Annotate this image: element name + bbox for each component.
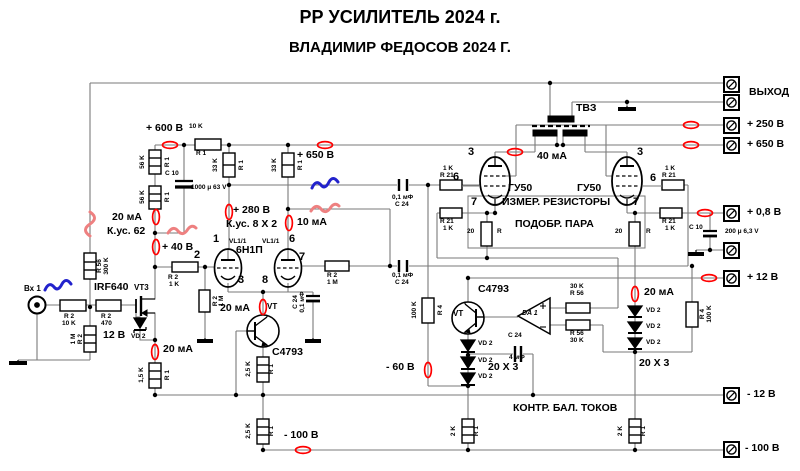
rot-25k-a: 2,5 K xyxy=(246,361,253,377)
red-squiggle-anode2 xyxy=(311,204,339,211)
rot-r1-c: R 1 xyxy=(239,160,246,170)
schematic-page: РР УСИЛИТЕЛЬ 2024 г. ВЛАДИМИР ФЕДОСОВ 20… xyxy=(0,0,800,471)
label-20r: 20 xyxy=(615,229,622,236)
terminal-minus12v-label: - 12 В xyxy=(747,389,776,400)
label-6n1p: 6Н1П xyxy=(236,245,263,256)
label-c10-right: C 10 xyxy=(689,225,703,232)
rot-300k: 300 K xyxy=(104,257,111,274)
rot-100k-r: 100 K xyxy=(707,305,714,322)
terminal-icon xyxy=(725,389,738,402)
terminal-plus650v-label: + 650 В xyxy=(747,139,784,150)
label-cap1-c24: C 24 xyxy=(395,202,409,209)
terminal-plus250v xyxy=(723,117,740,134)
rot-01uf-byp: 0,1 мФ xyxy=(300,291,307,312)
terminal-plus0v8-label: + 0,8 В xyxy=(747,207,781,218)
label-20l: 20 xyxy=(467,229,474,236)
terminal-icon xyxy=(725,443,738,456)
label-plus280v: + 280 В xyxy=(233,205,270,216)
label-20ma-left: 20 мА xyxy=(112,212,142,223)
rot-1m-g1: 1 M xyxy=(219,296,226,307)
cap-c10-200u xyxy=(703,231,717,236)
rot-15k: 1,5 K xyxy=(139,367,146,383)
rot-56k-1: 56 K xyxy=(140,155,147,169)
diode-chain-right xyxy=(628,306,642,349)
rot-25k-b: 2,5 K xyxy=(246,423,253,439)
label-minus60v: - 60 В xyxy=(386,362,415,373)
pin-7-gu50l: 7 xyxy=(471,197,477,208)
cap-c24-coupling-1 xyxy=(399,179,407,191)
label-c24s-1: C 24 xyxy=(508,333,522,340)
label-gu50-left: ГУ50 xyxy=(508,183,532,194)
label-r1-10k: R 1 xyxy=(196,151,206,158)
label-vd2-c1: VD 2 xyxy=(478,341,492,348)
rot-r1-i: R 1 xyxy=(641,426,648,436)
label-tvz: ТВЗ xyxy=(576,103,596,114)
label-podobr: ПОДОБР. ПАРА xyxy=(515,219,594,230)
rot-33k-1: 33 K xyxy=(213,158,220,172)
label-c4793-center: C4793 xyxy=(272,347,303,358)
label-40ma: 40 мА xyxy=(537,151,567,162)
label-vt-center: VT xyxy=(267,303,277,311)
label-vd2-r3: VD 2 xyxy=(646,340,660,347)
rot-2k-r: 2 K xyxy=(618,426,625,436)
label-vh1: Вх 1 xyxy=(24,285,41,293)
label-da1: DA 1 xyxy=(522,310,538,317)
label-plus600v: + 600 В xyxy=(146,123,183,134)
label-gu50-right: ГУ50 xyxy=(577,183,601,194)
label-vt-right: VT xyxy=(453,310,463,318)
label-c24s-2: 4 мФ xyxy=(509,355,525,362)
terminal-plus250v-label: + 250 В xyxy=(747,119,784,130)
rot-100k-l: 100 K xyxy=(412,301,419,318)
label-20ma-leftbottom: 20 мА xyxy=(163,344,193,355)
label-kontr: КОНТР. БАЛ. ТОКОВ xyxy=(513,403,617,414)
pin-1: 1 xyxy=(213,234,219,245)
label-vt3: VT3 xyxy=(134,284,149,292)
label-c4793-right: C4793 xyxy=(478,284,509,295)
label-plus40v: + 40 В xyxy=(162,242,193,253)
cap-c24-coupling-2 xyxy=(399,260,407,272)
terminal-icon xyxy=(725,139,738,152)
terminal-ground xyxy=(723,242,740,259)
rot-r1-h: R 1 xyxy=(474,426,481,436)
rot-r4-l: R 4 xyxy=(438,305,445,315)
pin-2: 2 xyxy=(194,250,200,261)
transistor-c4793-right xyxy=(452,302,484,334)
wires xyxy=(18,83,723,450)
label-r2-1k-2: 1 K xyxy=(169,282,179,289)
pin-3: 3 xyxy=(238,275,244,286)
rot-r1-g: R 1 xyxy=(269,426,276,436)
terminal-minus100v xyxy=(723,441,740,458)
label-r56t-2: R 56 xyxy=(570,291,584,298)
label-vl11-a: VL1/1 xyxy=(229,239,246,246)
label-12v: 12 В xyxy=(103,330,125,341)
label-minus100v-mid: - 100 В xyxy=(284,430,318,441)
label-200u: 200 μ 6,3 V xyxy=(725,229,759,236)
terminal-output-1 xyxy=(723,76,740,93)
terminal-minus12v xyxy=(723,387,740,404)
terminal-output-1-label: ВЫХОД xyxy=(749,87,789,98)
mosfet-irf640 xyxy=(136,296,155,316)
transistor-c4793-center xyxy=(247,315,279,347)
terminal-icon xyxy=(725,244,738,257)
label-10k-top: 10 K xyxy=(189,124,203,131)
rot-r1-a: R 1 xyxy=(165,157,172,167)
label-vl11-b: VL1/1 xyxy=(262,239,279,246)
label-c10-left: C 10 xyxy=(165,171,179,178)
pin-6-gu50r: 6 xyxy=(650,173,656,184)
label-kus8x2: К.ус. 8 X 2 xyxy=(226,219,277,230)
rot-2k-l: 2 K xyxy=(451,426,458,436)
label-r2-1m-g2-2: 1 M xyxy=(327,280,338,287)
label-kus62: К.ус. 62 xyxy=(107,226,145,237)
label-1000u: 1000 μ 63 V xyxy=(191,185,226,192)
terminal-plus650v xyxy=(723,137,740,154)
cap-c24-bypass xyxy=(306,296,320,301)
label-r21gl-2: R 21 xyxy=(440,173,454,180)
label-r21cr-2: 1 K xyxy=(665,226,675,233)
pin-8: 8 xyxy=(262,275,268,286)
label-rl: R xyxy=(497,229,502,236)
resistor-vertical-bodies xyxy=(84,150,698,444)
terminal-icon xyxy=(725,96,738,109)
terminal-icon xyxy=(725,119,738,132)
label-vd2-r2: VD 2 xyxy=(646,324,660,331)
terminal-plus12v xyxy=(723,270,740,287)
terminal-minus100v-label: - 100 В xyxy=(745,443,779,454)
pin-3-gu50r: 3 xyxy=(637,147,643,158)
label-cap2-c24: C 24 xyxy=(395,280,409,287)
label-r2in-2: 10 K xyxy=(62,321,76,328)
terminal-plus12v-label: + 12 В xyxy=(747,272,778,283)
input-jack xyxy=(29,297,46,314)
label-20ma-right: 20 мА xyxy=(644,287,674,298)
label-rr: R xyxy=(646,229,651,236)
label-20x3-right: 20 X 3 xyxy=(639,358,669,369)
rot-r2-in: R 2 xyxy=(78,334,85,344)
label-izmer: ИЗМЕР. РЕЗИСТОРЫ xyxy=(502,197,610,208)
label-plus650v-mid: + 650 В xyxy=(297,150,334,161)
terminal-icon xyxy=(725,272,738,285)
pin-7-gu50r: 7 xyxy=(633,197,639,208)
pin-6: 6 xyxy=(289,234,295,245)
pin-3-gu50l: 3 xyxy=(468,147,474,158)
blue-squiggle-driver xyxy=(312,179,338,189)
measurement-ovals xyxy=(152,122,717,454)
terminal-output-2 xyxy=(723,94,740,111)
rot-r1-e: R 1 xyxy=(165,370,172,380)
blue-squiggle-input xyxy=(45,281,71,291)
label-vd2-c3: VD 2 xyxy=(478,374,492,381)
label-vd2-c2: VD 2 xyxy=(478,358,492,365)
terminal-icon xyxy=(725,207,738,220)
rot-r1-b: R 1 xyxy=(165,192,172,202)
label-r21gr-2: R 21 xyxy=(662,173,676,180)
label-10ma: 10 мА xyxy=(297,217,327,228)
transformer-tvz xyxy=(532,116,590,136)
terminal-plus0v8 xyxy=(723,205,740,222)
label-vd2-r1: VD 2 xyxy=(646,308,660,315)
label-20x3-center: 20 X 3 xyxy=(488,362,518,373)
label-r21cl-2: 1 K xyxy=(443,226,453,233)
rot-56k-2: 56 K xyxy=(140,190,147,204)
label-irf640: IRF640 xyxy=(94,282,128,293)
label-vd2-mosfet: VD 2 xyxy=(131,334,145,341)
label-r470-2: 470 xyxy=(101,321,112,328)
rot-r1-d: R 1 xyxy=(298,160,305,170)
pin-7: 7 xyxy=(299,252,305,263)
label-r56b-2: 30 K xyxy=(570,338,584,345)
rot-33k-2: 33 K xyxy=(272,158,279,172)
diode-chain-center xyxy=(461,340,475,385)
zener-vd2-mosfet xyxy=(134,318,146,333)
terminal-icon xyxy=(725,78,738,91)
diodes xyxy=(134,306,642,385)
rot-r1-f: R 1 xyxy=(269,364,276,374)
